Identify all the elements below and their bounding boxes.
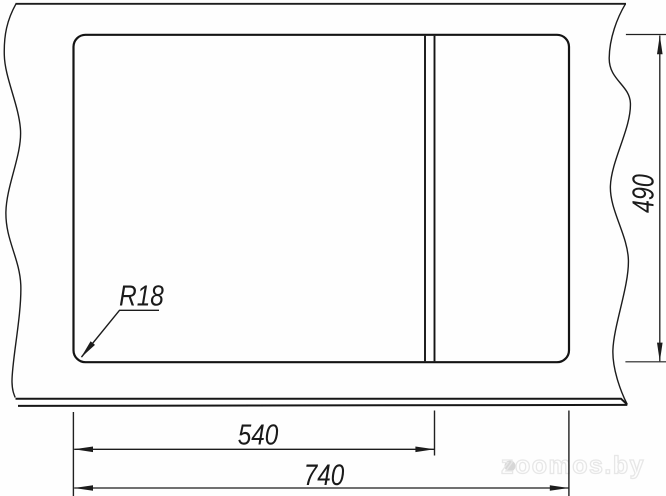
svg-text:zoomos.by: zoomos.by	[501, 452, 645, 480]
svg-text:540: 540	[238, 418, 279, 450]
svg-text:740: 740	[304, 457, 345, 491]
svg-text:R18: R18	[119, 280, 164, 312]
svg-text:490: 490	[625, 174, 660, 213]
